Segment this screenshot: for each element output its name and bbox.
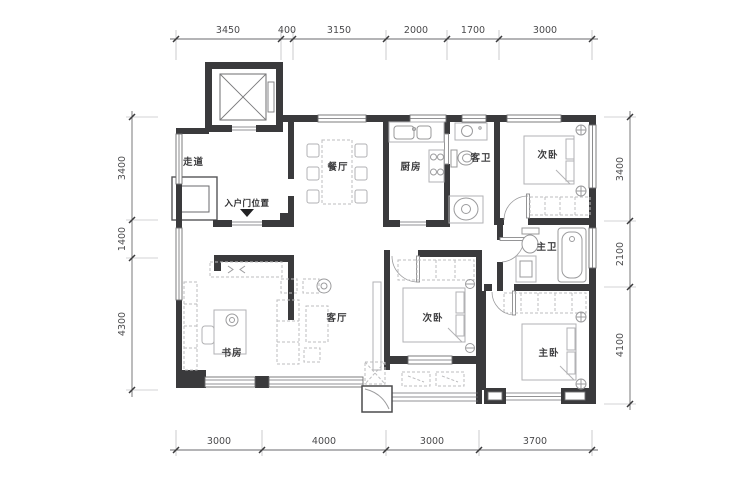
room-label-bedroom-mid: 次卧 xyxy=(422,312,443,324)
dim-left-3400: 3400 xyxy=(117,156,128,180)
entry-marker: 入户门位置 xyxy=(223,198,269,217)
elevator-cab xyxy=(220,74,274,120)
room-label-dining: 餐厅 xyxy=(326,161,348,173)
room-label-master-bath: 主卫 xyxy=(536,241,557,253)
room-label-corridor: 走道 xyxy=(182,156,204,168)
dim-right-4100: 4100 xyxy=(615,333,626,357)
dim-left-1400: 1400 xyxy=(117,227,128,251)
floor-plan: 3450 400 3150 2000 1700 3000 3000 4000 3… xyxy=(0,0,748,498)
dim-left-4300: 4300 xyxy=(117,312,128,336)
room-label-master-bedroom: 主卧 xyxy=(538,347,559,359)
dim-top-3150: 3150 xyxy=(327,25,351,36)
floor-plan-canvas: 3450 400 3150 2000 1700 3000 3000 4000 3… xyxy=(0,0,748,498)
dim-bottom-4000: 4000 xyxy=(312,436,336,447)
dim-top-2000: 2000 xyxy=(404,25,428,36)
dim-top-400: 400 xyxy=(278,25,296,36)
dimension-right: 3400 2100 4100 xyxy=(604,111,636,410)
dim-top-1700: 1700 xyxy=(461,25,485,36)
entry-label: 入户门位置 xyxy=(223,198,269,209)
dim-top-3000: 3000 xyxy=(533,25,557,36)
dim-bottom-3000l: 3000 xyxy=(207,436,231,447)
room-label-kitchen: 厨房 xyxy=(400,161,421,173)
room-label-guest-bath: 客卫 xyxy=(469,152,491,164)
dimension-top: 3450 400 3150 2000 1700 3000 xyxy=(170,25,598,60)
room-label-living: 客厅 xyxy=(325,312,347,324)
dim-right-3400: 3400 xyxy=(615,157,626,181)
dim-bottom-3700: 3700 xyxy=(523,436,547,447)
entry-arrow-icon xyxy=(240,209,254,217)
kitchen-counter xyxy=(389,122,444,182)
room-label-bedroom-top: 次卧 xyxy=(537,149,558,161)
dim-top-3450: 3450 xyxy=(216,25,240,36)
room-labels: 走道 餐厅 厨房 客卫 次卧 主卫 主卧 次卧 客厅 书房 xyxy=(182,149,560,359)
guest-bath-fixtures xyxy=(449,123,487,223)
master-bath-fixtures xyxy=(516,228,586,282)
bedroom-mid-furniture xyxy=(398,260,475,353)
dimension-left: 3400 1400 4300 xyxy=(117,111,158,397)
master-bedroom-furniture xyxy=(504,293,586,389)
dim-bottom-3000r: 3000 xyxy=(420,436,444,447)
dim-right-2100: 2100 xyxy=(615,242,626,266)
room-label-study: 书房 xyxy=(221,347,242,359)
bedroom-top-furniture xyxy=(524,125,590,215)
dimension-bottom: 3000 4000 3000 3700 xyxy=(170,430,598,456)
